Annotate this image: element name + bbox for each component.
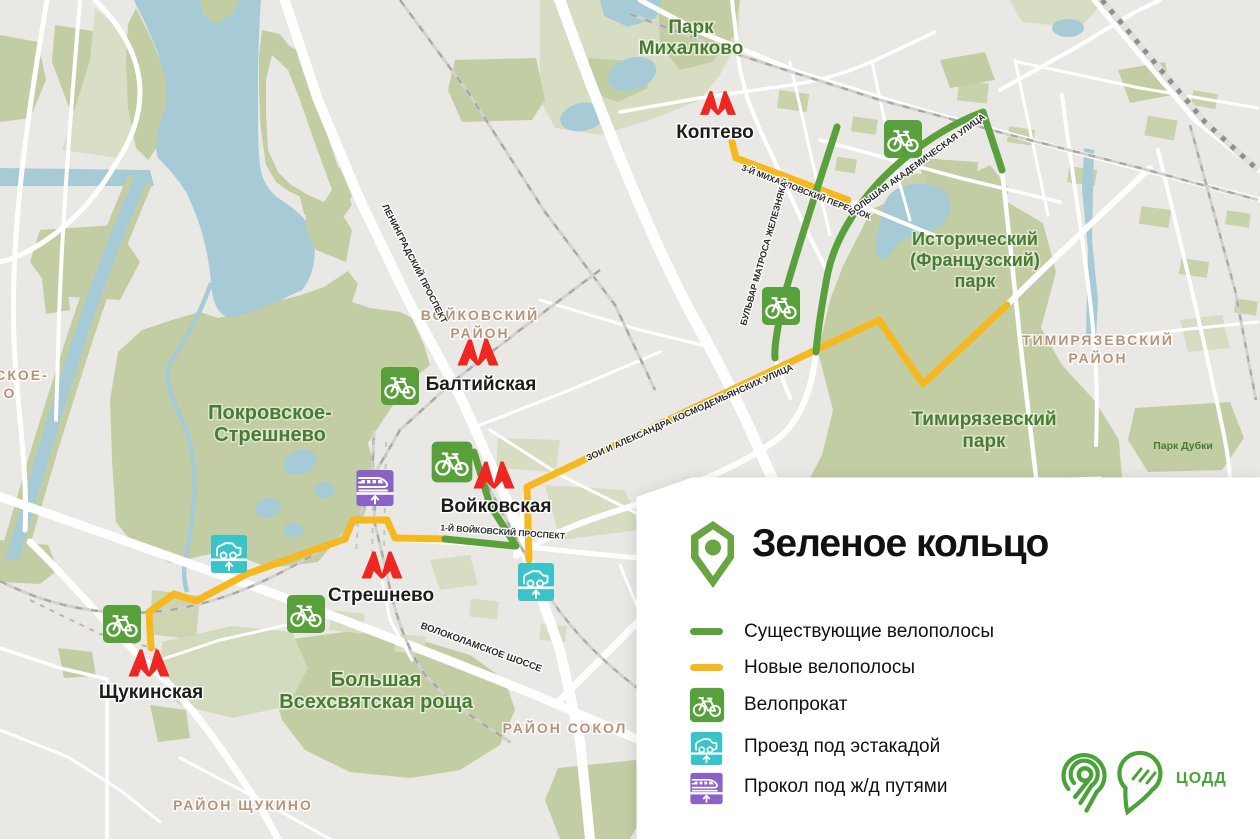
svg-text:Балтийская: Балтийская	[426, 374, 537, 395]
svg-text:парк: парк	[962, 431, 1006, 452]
svg-text:ТИМИРЯЗЕВСКИЙ: ТИМИРЯЗЕВСКИЙ	[1022, 331, 1174, 348]
svg-text:Новые велополосы: Новые велополосы	[744, 657, 915, 678]
svg-text:РАЙОН: РАЙОН	[450, 324, 509, 341]
svg-text:Существующие велополосы: Существующие велополосы	[744, 621, 994, 642]
svg-text:РАЙОН: РАЙОН	[1068, 349, 1127, 366]
svg-text:Щукинская: Щукинская	[99, 682, 203, 703]
svg-text:Коптево: Коптево	[676, 122, 754, 143]
svg-text:Проезд под эстакадой: Проезд под эстакадой	[744, 736, 940, 757]
svg-text:ЦОДД: ЦОДД	[1176, 770, 1227, 787]
svg-text:Парк Дубки: Парк Дубки	[1153, 440, 1213, 452]
svg-text:Стрешнево: Стрешнево	[214, 424, 326, 446]
svg-text:(Французский): (Французский)	[910, 250, 1040, 270]
svg-text:Парк: Парк	[668, 17, 714, 38]
svg-text:Большая: Большая	[331, 669, 422, 691]
svg-text:СКОЕ-: СКОЕ-	[0, 367, 49, 383]
svg-text:Войковская: Войковская	[441, 496, 552, 517]
svg-text:Стрешнево: Стрешнево	[328, 585, 434, 606]
svg-text:парк: парк	[955, 271, 997, 291]
svg-text:Тимирязевский: Тимирязевский	[911, 409, 1056, 430]
svg-text:Исторический: Исторический	[912, 229, 1038, 249]
svg-text:Михалково: Михалково	[639, 38, 744, 59]
svg-text:Велопрокат: Велопрокат	[744, 694, 848, 715]
svg-text:РАЙОН ЩУКИНО: РАЙОН ЩУКИНО	[173, 796, 313, 813]
svg-text:РАЙОН СОКОЛ: РАЙОН СОКОЛ	[503, 719, 628, 736]
svg-text:О: О	[4, 385, 17, 401]
svg-text:Зеленое кольцо: Зеленое кольцо	[752, 522, 1049, 565]
svg-text:Всехсвятская роща: Всехсвятская роща	[279, 691, 473, 713]
svg-text:Покровское-: Покровское-	[208, 402, 332, 424]
svg-text:Прокол под ж/д путями: Прокол под ж/д путями	[744, 776, 947, 797]
